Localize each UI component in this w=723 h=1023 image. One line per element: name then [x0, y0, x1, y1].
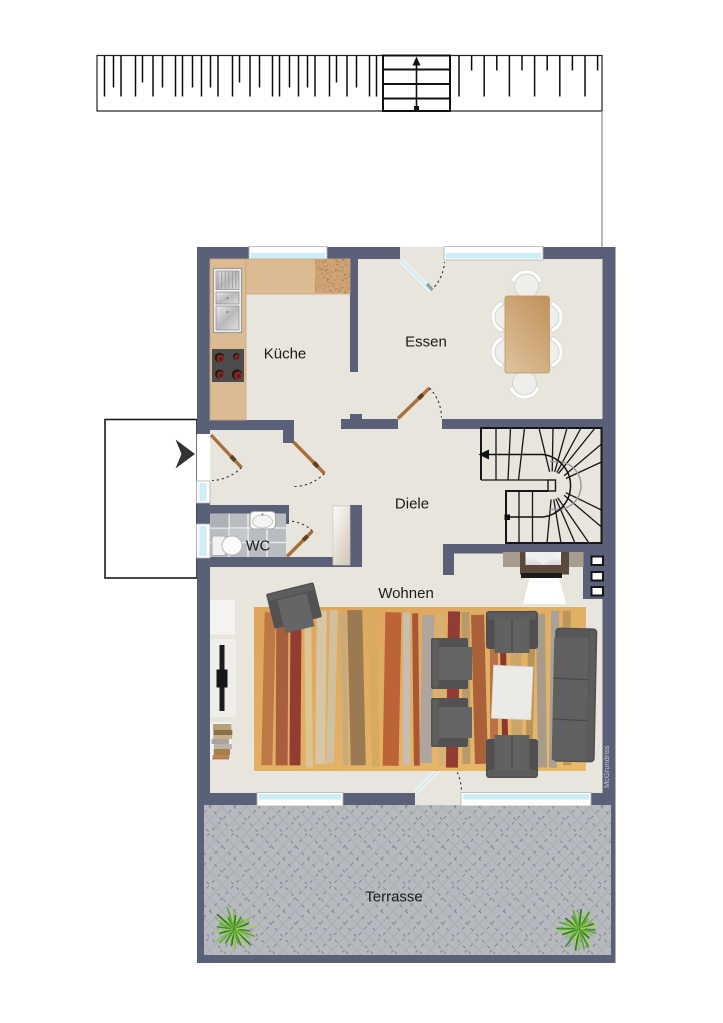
svg-text:Essen: Essen [405, 334, 447, 351]
svg-text:Diele: Diele [395, 496, 429, 513]
svg-text:Terrasse: Terrasse [365, 889, 423, 906]
svg-text:Wohnen: Wohnen [378, 585, 434, 602]
svg-text:McGrundriss: McGrundriss [602, 745, 611, 788]
svg-text:Küche: Küche [264, 346, 307, 363]
svg-text:WC: WC [246, 539, 270, 555]
